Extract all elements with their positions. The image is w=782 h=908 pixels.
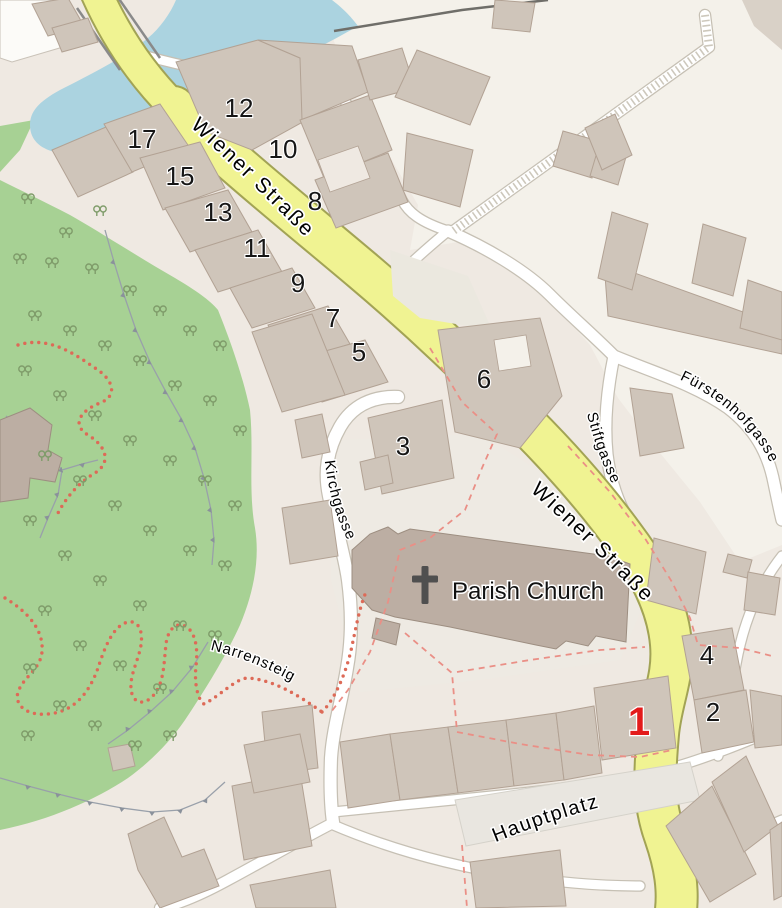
building-number-17: 17	[128, 124, 157, 154]
street-map-image: 12 17 10 15 8 13 11 9 7 5 6 3 4 2 1 Wien…	[0, 0, 782, 908]
building-number-1-highlighted: 1	[628, 700, 650, 744]
building-number-10: 10	[269, 134, 298, 164]
building-number-2: 2	[706, 697, 720, 727]
building-number-9: 9	[291, 268, 305, 298]
building-number-12: 12	[225, 93, 254, 123]
map-canvas[interactable]: 12 17 10 15 8 13 11 9 7 5 6 3 4 2 1 Wien…	[0, 0, 782, 908]
building-number-7: 7	[326, 303, 340, 333]
building-number-4: 4	[700, 640, 714, 670]
building-number-15: 15	[166, 161, 195, 191]
building-number-3: 3	[396, 431, 410, 461]
building-number-8: 8	[308, 186, 322, 216]
building-number-6: 6	[477, 364, 491, 394]
building-number-11: 11	[244, 233, 271, 263]
building-number-5: 5	[352, 337, 366, 367]
building-number-13: 13	[204, 197, 233, 227]
parish-church-label: Parish Church	[452, 578, 604, 605]
